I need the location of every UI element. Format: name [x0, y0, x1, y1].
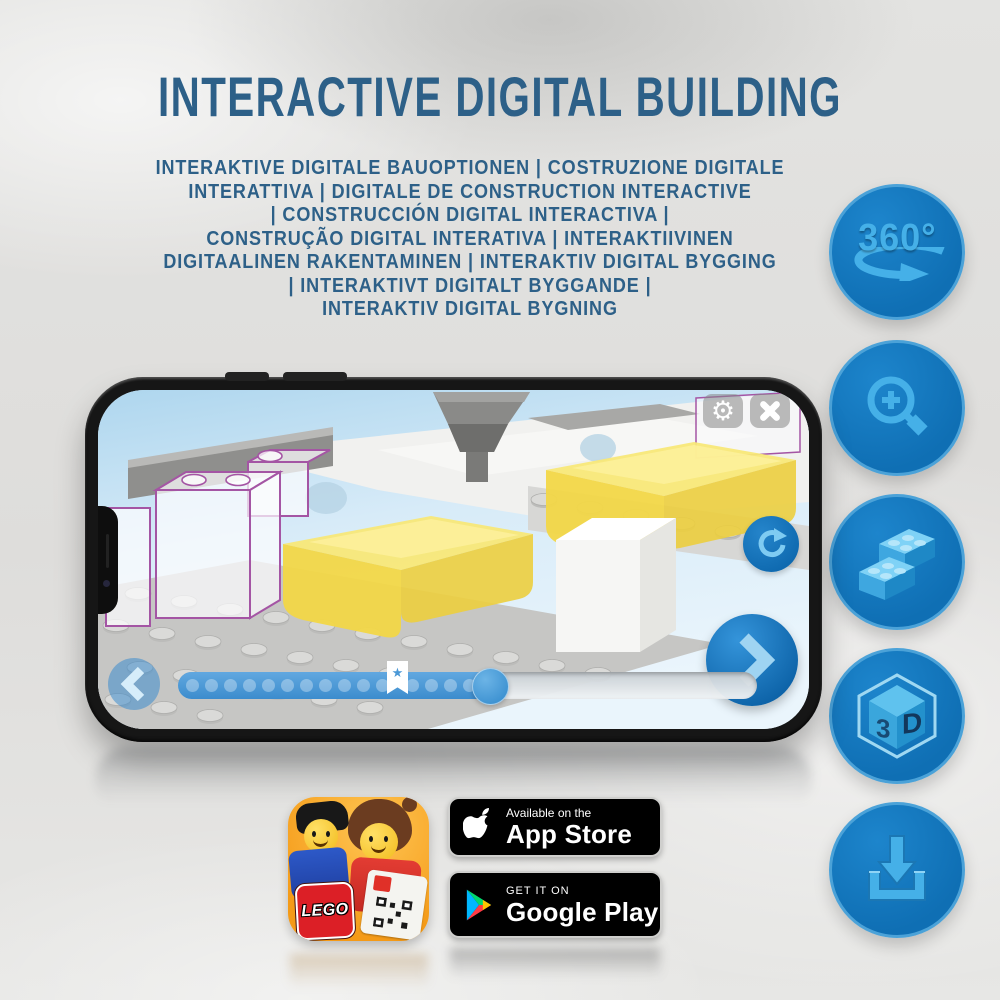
subtitle-line: | INTERAKTIVT DIGITALT BYGGANDE | — [101, 275, 839, 299]
badge-reflection — [450, 948, 660, 978]
subtitle-line: INTERATTIVA | DIGITALE DE CONSTRUCTION I… — [101, 181, 839, 205]
subtitle-line: INTERAKTIVE DIGITALE BAUOPTIONEN | COSTR… — [101, 157, 839, 181]
app-screen: ⚙ — [98, 390, 809, 729]
rotate-view-button[interactable] — [743, 516, 799, 572]
chevron-left-icon — [117, 664, 151, 704]
apple-icon — [463, 808, 495, 846]
app-store-tagline: Available on the — [506, 806, 632, 820]
phone-volume-button — [283, 372, 347, 381]
icon-reflection — [290, 954, 428, 988]
speaker-slit — [106, 534, 109, 568]
marketing-banner: INTERACTIVE DIGITAL BUILDING INTERAKTIVE… — [0, 0, 1000, 1000]
close-button[interactable] — [750, 394, 790, 428]
booklet-red-square — [373, 875, 392, 892]
zoom-in-magnifier-icon — [859, 370, 935, 446]
lego-logo-text: LEGO — [301, 901, 349, 921]
phone-mockup: ⚙ — [85, 377, 822, 742]
lego-bricks-icon — [851, 516, 943, 608]
lego-logo: LEGO — [295, 882, 356, 941]
subtitle-line: INTERAKTIV DIGITAL BYGNING — [101, 298, 839, 322]
360-degree-label: 360° — [858, 223, 936, 253]
settings-button[interactable]: ⚙ — [703, 394, 743, 428]
girl-minifig-hair — [402, 797, 417, 812]
feature-badge-bricks — [829, 494, 965, 630]
progress-scrubber-handle[interactable] — [472, 668, 509, 705]
google-play-tagline: GET IT ON — [506, 884, 658, 898]
white-box — [556, 518, 676, 652]
download-icon — [855, 828, 939, 912]
feature-badge-3d: 3 D — [829, 648, 965, 784]
feature-badge-zoom — [829, 340, 965, 476]
lego-app-icon[interactable]: LEGO — [288, 797, 429, 941]
progress-steps — [186, 679, 389, 692]
page-title: INTERACTIVE DIGITAL BUILDING — [140, 64, 860, 129]
phone-volume-button — [225, 372, 269, 381]
google-play-icon — [463, 887, 495, 923]
progress-steps — [406, 679, 476, 692]
instruction-booklet — [360, 869, 428, 941]
feature-badge-download — [829, 802, 965, 938]
google-play-badge[interactable]: GET IT ON Google Play — [448, 871, 662, 938]
subtitle-line: CONSTRUÇÃO DIGITAL INTERATIVA | INTERAKT… — [101, 228, 839, 252]
previous-step-button[interactable] — [108, 658, 160, 710]
gear-icon: ⚙ — [711, 398, 735, 425]
close-icon — [759, 400, 781, 422]
girl-minifig-face — [360, 823, 398, 861]
camera-icon — [103, 580, 110, 587]
phone-notch — [98, 506, 118, 614]
rotate-icon — [754, 527, 788, 561]
qr-code-icon — [373, 897, 413, 932]
multilingual-subtitle: INTERAKTIVE DIGITALE BAUOPTIONEN | COSTR… — [101, 157, 839, 322]
cube-letter-d: D — [902, 706, 922, 740]
app-store-name: App Store — [506, 820, 632, 848]
feature-badge-360: 360° — [829, 184, 965, 320]
google-play-name: Google Play — [506, 898, 658, 926]
app-store-badge[interactable]: Available on the App Store — [448, 797, 662, 857]
subtitle-line: | CONSTRUCCIÓN DIGITAL INTERACTIVA | — [101, 204, 839, 228]
cube-letter-3: 3 — [876, 712, 890, 744]
arch-piece — [305, 482, 347, 514]
3d-cube-icon: 3 D — [852, 671, 942, 761]
subtitle-line: DIGITAALINEN RAKENTAMINEN | INTERAKTIV D… — [101, 251, 839, 275]
